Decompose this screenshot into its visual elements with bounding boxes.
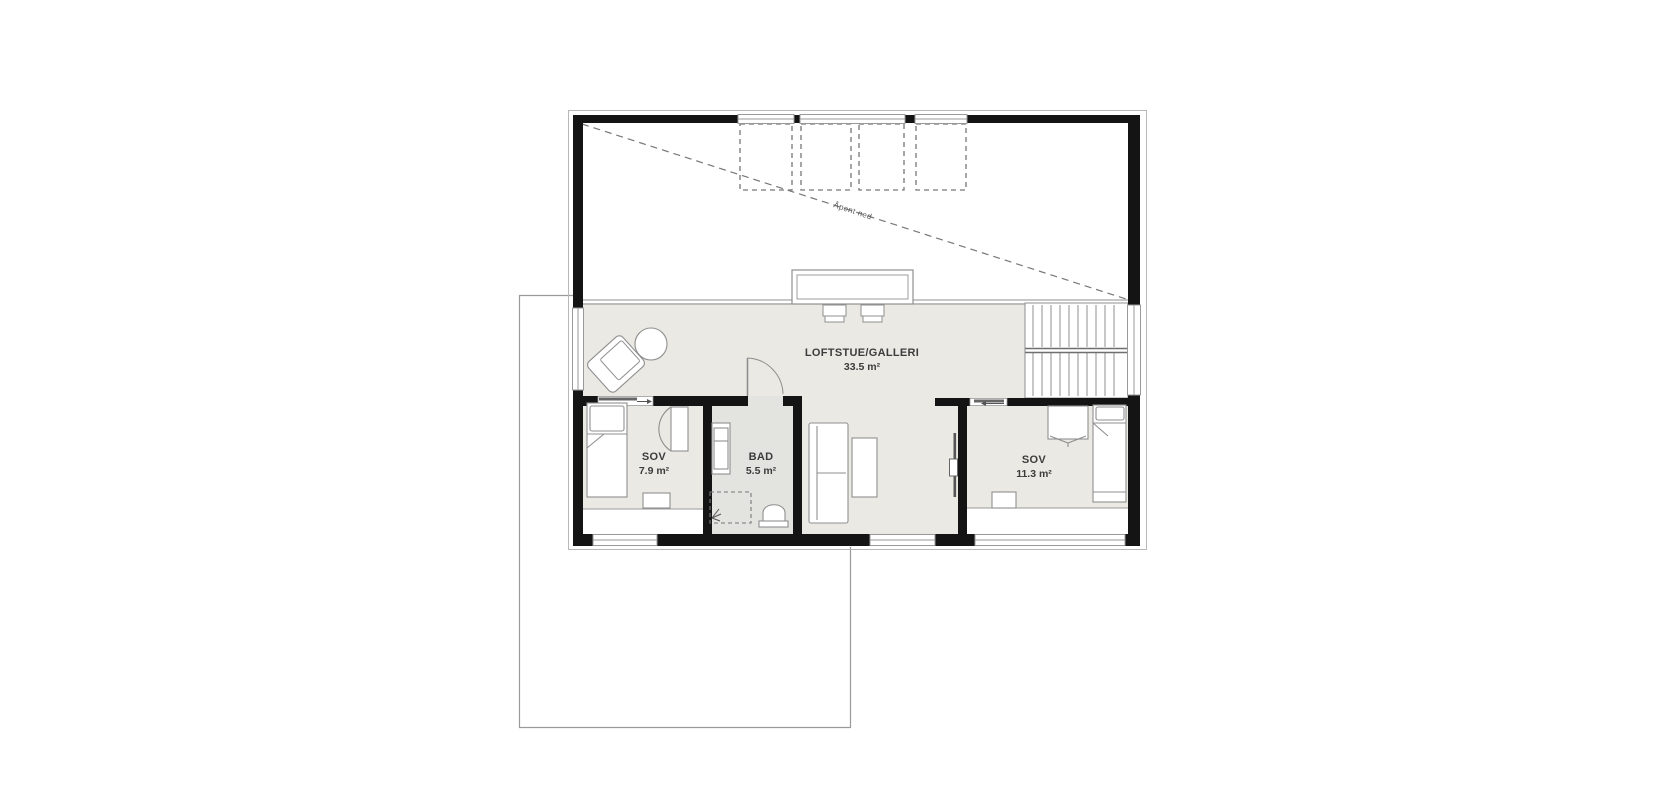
bed-sov-right (1093, 405, 1126, 502)
window-top-1 (738, 115, 794, 124)
label-bad: BAD (749, 451, 774, 463)
coffee-table (852, 438, 877, 497)
window-bottom-1 (593, 535, 657, 546)
skylight-dashed-boxes (740, 124, 966, 190)
bedside-table-sov-left (643, 493, 670, 508)
sofa (809, 423, 848, 523)
washbasin-counter (712, 423, 730, 474)
label-sov-right: SOV (1022, 454, 1046, 466)
floor-plan-svg: Åpent ned (0, 0, 1670, 800)
window-bottom-3 (975, 535, 1125, 546)
bedside-table-sov-right (992, 492, 1016, 508)
desk-chair-right (861, 305, 884, 322)
label-sov-left: SOV (642, 451, 666, 463)
area-loftstue: 33.5 m² (844, 361, 881, 373)
label-loftstue: LOFTSTUE/GALLERI (805, 347, 919, 359)
window-top-2 (800, 115, 905, 124)
railing-desk-nook (792, 270, 913, 304)
desk-chair-left (823, 305, 846, 322)
sliding-door-sov-right (970, 399, 1007, 407)
window-bottom-2 (870, 535, 935, 546)
staircase (1025, 303, 1128, 398)
window-left (573, 308, 584, 390)
bed-sov-left (587, 403, 627, 497)
window-right (1128, 305, 1141, 395)
area-sov-left: 7.9 m² (639, 465, 670, 477)
area-sov-right: 11.3 m² (1016, 468, 1052, 480)
round-side-table (635, 328, 667, 360)
floor-plan-page: Åpent ned (0, 0, 1670, 800)
window-top-3 (915, 115, 967, 124)
open-below-label: Åpent ned (832, 200, 873, 221)
area-bad: 5.5 m² (746, 465, 777, 477)
